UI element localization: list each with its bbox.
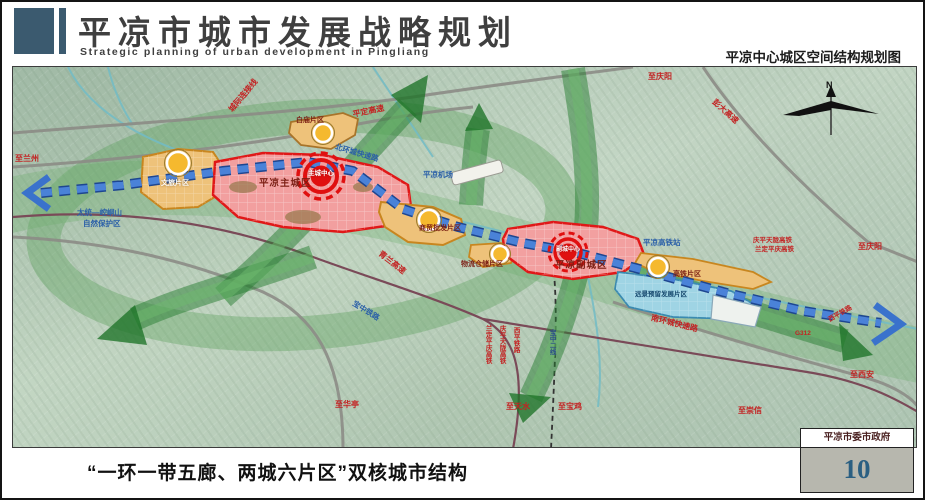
zone-label-wuliu: 物流仓储片区 <box>461 261 503 269</box>
compass-icon <box>783 85 879 135</box>
label-to-xian: 至西安 <box>850 371 874 380</box>
core-label-sub: 副城中心 <box>548 247 588 254</box>
label-to-tianshui: 至天水 <box>506 403 530 412</box>
page-title-english: Strategic planning of urban development … <box>80 46 430 58</box>
planning-map: 至兰州 城际连接线 至庆阳 彭大高速 平定高速 北环城快速路 白庙片区 文旅片区… <box>12 66 917 448</box>
label-nature-reserve-1: 太统—崆峒山 <box>77 209 122 217</box>
structure-caption: “一环一带五廊、两城六片区”双核城市结构 <box>87 458 468 485</box>
label-v-rail-qingping: 庆平天陇高铁 <box>498 325 505 364</box>
organization-box: 平凉市委市政府 <box>800 428 914 448</box>
label-hsr-pair-2: 兰定平庆高铁 <box>755 246 794 253</box>
label-g312: G312 <box>795 330 811 337</box>
label-baozhong-line2: 宝中二线 <box>548 329 555 355</box>
label-v-rail-xiping: 西平铁路 <box>512 327 519 353</box>
label-to-qingyang-top: 至庆阳 <box>648 73 672 82</box>
label-hsr-pair-1: 庆平天陇高铁 <box>753 237 792 244</box>
label-airport: 平凉机场 <box>423 171 453 179</box>
label-to-qingyang-right: 至庆阳 <box>858 243 882 252</box>
zone-label-yuanjing: 远景预留发展片区 <box>635 291 687 298</box>
header-bar-mark <box>59 8 66 54</box>
page-number: 10 <box>800 448 914 493</box>
label-hsr-station: 平凉高铁站 <box>643 239 681 247</box>
core-label-main: 主城中心 <box>297 170 345 177</box>
label-to-lanzhou: 至兰州 <box>15 155 39 164</box>
map-graphic <box>13 67 917 448</box>
zone-label-gaotie: 高铁片区 <box>673 271 701 279</box>
zone-label-main-city: 平凉主城区 <box>259 179 312 189</box>
label-to-baoji: 至宝鸡 <box>558 403 582 412</box>
label-to-huating: 至华亭 <box>335 401 359 410</box>
label-to-chongxin: 至崇信 <box>738 407 762 416</box>
planning-document-page: 平凉市城市发展战略规划 Strategic planning of urban … <box>0 0 925 500</box>
header-square-mark <box>14 8 54 54</box>
label-v-rail-landing: 兰定平庆高铁 <box>484 325 491 364</box>
map-subtitle: 平凉中心城区空间结构规划图 <box>726 46 902 66</box>
zone-label-wenlv: 文旅片区 <box>161 180 189 188</box>
zone-label-sub-city: 平凉副城区 <box>555 261 608 271</box>
label-nature-reserve-2: 自然保护区 <box>83 220 121 228</box>
zone-label-baimiao: 白庙片区 <box>296 117 324 125</box>
compass-north-label: N <box>826 81 833 91</box>
zone-label-shangmao: 商贸批发片区 <box>419 225 461 233</box>
